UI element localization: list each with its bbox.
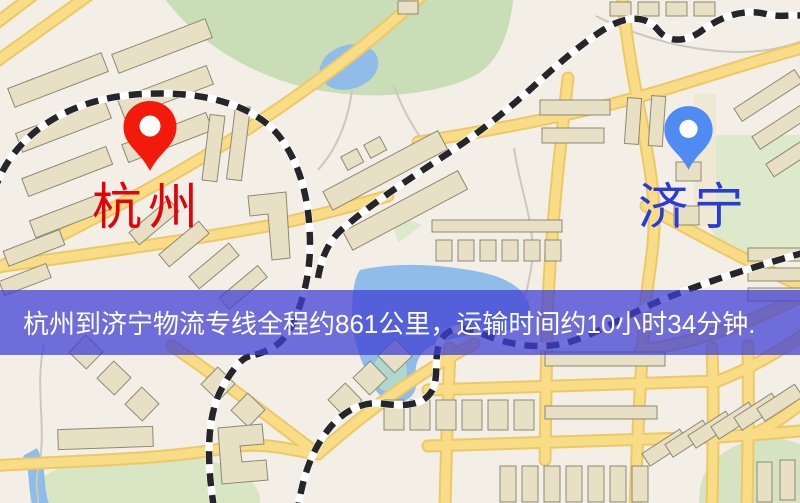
pin-hole [140,116,161,137]
destination-city-label: 济宁 [638,182,750,232]
origin-pin-icon[interactable] [122,100,178,172]
destination-pin-icon[interactable] [663,104,714,172]
map-background [0,0,800,503]
pin-hole [679,120,697,138]
route-info-text: 杭州到济宁物流专线全程约861公里，运输时间约10小时34分钟. [23,304,755,341]
route-info-banner: 杭州到济宁物流专线全程约861公里，运输时间约10小时34分钟. [0,290,800,355]
map-screenshot: 杭州 济宁 杭州到济宁物流专线全程约861公里，运输时间约10小时34分钟. [0,0,800,503]
origin-city-label: 杭州 [92,182,204,232]
